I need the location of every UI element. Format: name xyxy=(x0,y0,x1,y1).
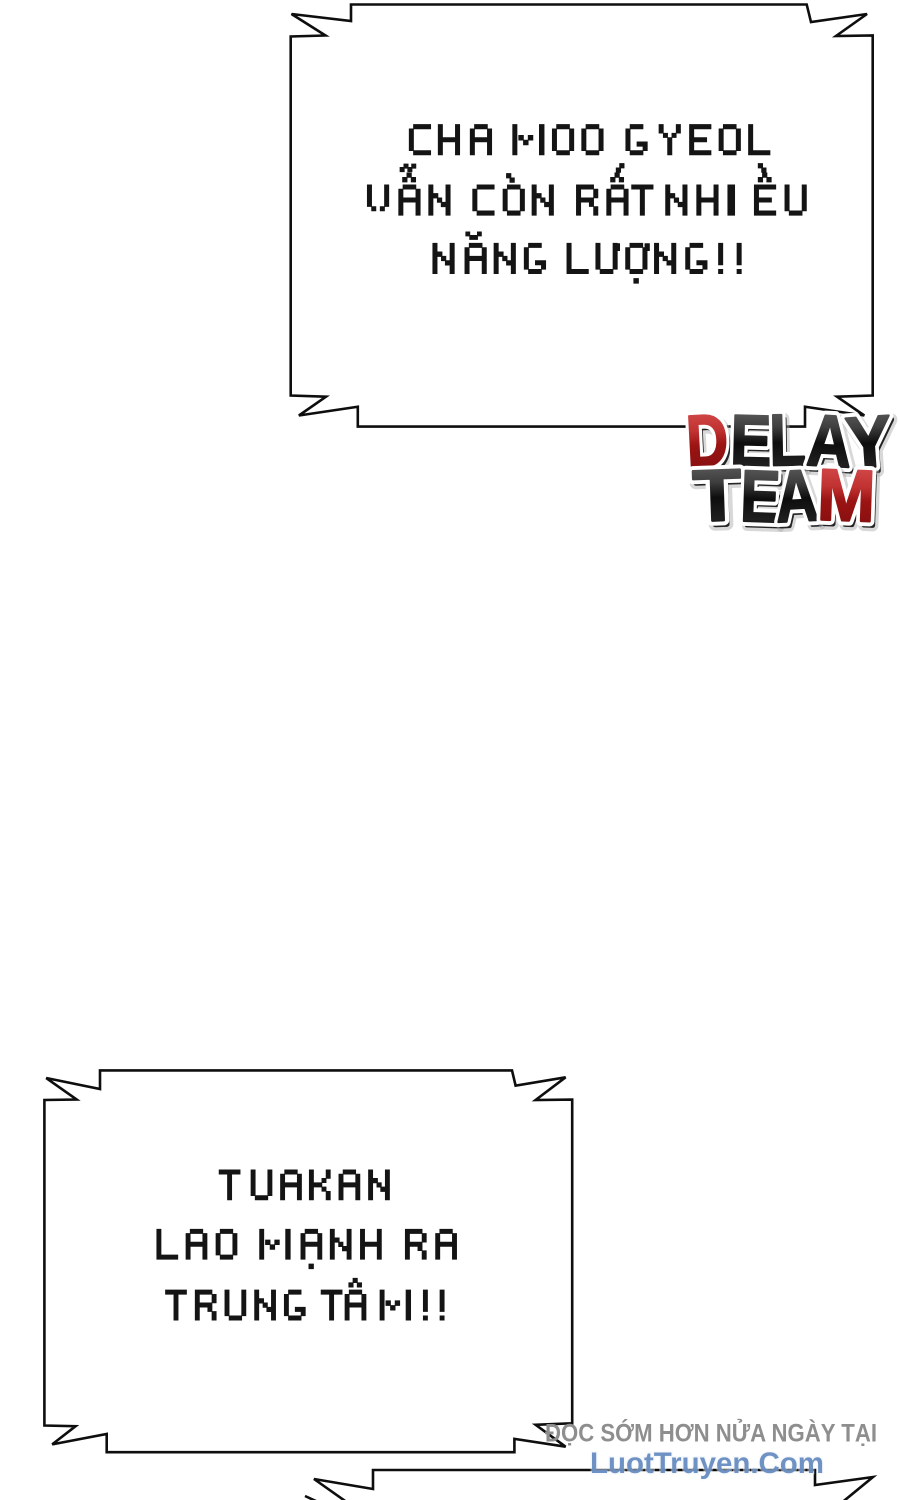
svg-text:T: T xyxy=(691,455,742,538)
svg-text:ĐỌC SỚM HƠN NỬA NGÀY TẠI: ĐỌC SỚM HƠN NỬA NGÀY TẠI xyxy=(545,1418,877,1448)
svg-text:LuotTruyen.Com: LuotTruyen.Com xyxy=(590,1447,824,1480)
svg-text:M: M xyxy=(816,455,877,538)
svg-text:A: A xyxy=(773,455,820,539)
